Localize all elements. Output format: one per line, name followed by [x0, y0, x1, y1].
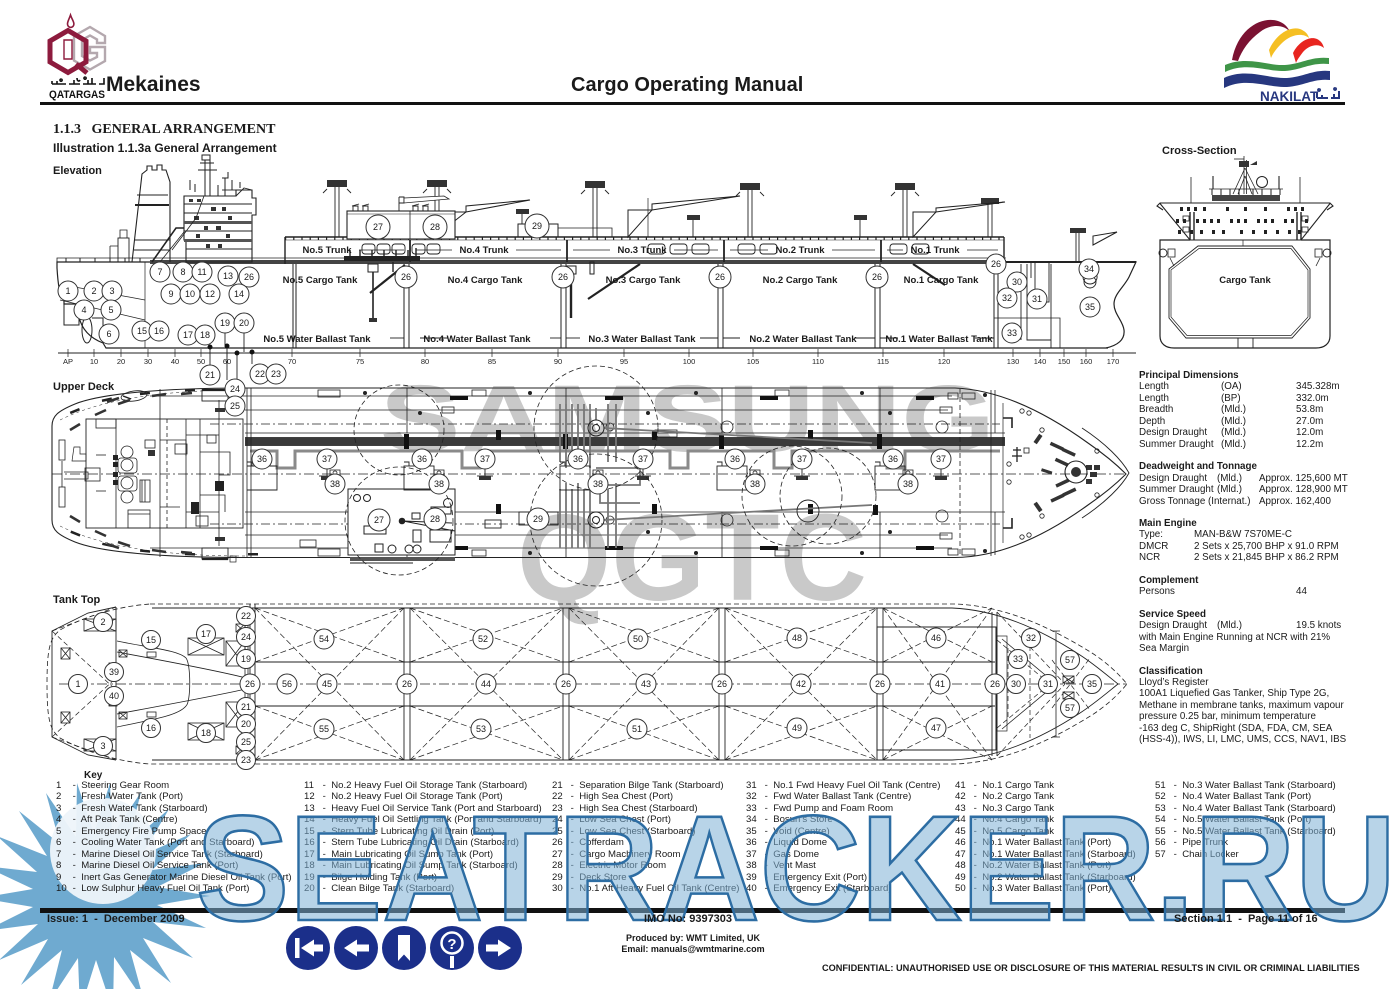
- svg-text:3: 3: [100, 741, 105, 751]
- svg-text:115: 115: [877, 357, 889, 366]
- svg-text:120: 120: [938, 357, 951, 366]
- svg-text:35: 35: [1085, 302, 1095, 312]
- svg-text:25: 25: [241, 737, 251, 747]
- svg-text:19: 19: [220, 318, 230, 328]
- svg-text:21: 21: [205, 370, 215, 380]
- svg-text:31: 31: [1043, 679, 1053, 689]
- svg-text:1: 1: [75, 679, 80, 689]
- svg-text:24: 24: [241, 632, 251, 642]
- svg-text:No.2 Trunk: No.2 Trunk: [775, 245, 825, 256]
- svg-text:No.1 Water Ballast Tank: No.1 Water Ballast Tank: [885, 334, 993, 345]
- svg-text:6: 6: [106, 329, 111, 339]
- svg-text:36: 36: [257, 454, 267, 464]
- svg-text:18: 18: [200, 330, 210, 340]
- svg-text:42: 42: [796, 679, 806, 689]
- svg-text:30: 30: [144, 357, 152, 366]
- svg-text:No.2 Water Ballast Tank: No.2 Water Ballast Tank: [749, 334, 857, 345]
- svg-text:44: 44: [481, 679, 491, 689]
- svg-text:85: 85: [488, 357, 496, 366]
- svg-text:19: 19: [241, 654, 251, 664]
- svg-text:37: 37: [322, 454, 332, 464]
- svg-text:7: 7: [157, 267, 162, 277]
- svg-text:33: 33: [1013, 654, 1023, 664]
- svg-text:57: 57: [1065, 703, 1075, 713]
- svg-text:130: 130: [1007, 357, 1020, 366]
- svg-text:49: 49: [792, 723, 802, 733]
- svg-text:150: 150: [1058, 357, 1071, 366]
- svg-text:30: 30: [1012, 277, 1022, 287]
- svg-text:No.4 Cargo Tank: No.4 Cargo Tank: [448, 275, 523, 286]
- svg-text:50: 50: [633, 634, 643, 644]
- svg-text:105: 105: [747, 357, 760, 366]
- svg-text:4: 4: [81, 305, 86, 315]
- svg-text:15: 15: [146, 635, 156, 645]
- svg-text:11: 11: [197, 267, 206, 277]
- svg-text:No.1 Cargo Tank: No.1 Cargo Tank: [904, 275, 979, 286]
- svg-text:27: 27: [374, 515, 384, 525]
- svg-text:21: 21: [241, 702, 251, 712]
- svg-text:37: 37: [638, 454, 648, 464]
- svg-text:70: 70: [288, 357, 296, 366]
- svg-text:53: 53: [476, 724, 486, 734]
- svg-text:90: 90: [554, 357, 562, 366]
- svg-text:30: 30: [1011, 679, 1021, 689]
- svg-text:38: 38: [903, 479, 913, 489]
- svg-text:2: 2: [100, 617, 105, 627]
- svg-text:80: 80: [421, 357, 429, 366]
- svg-text:26: 26: [244, 272, 254, 282]
- svg-text:38: 38: [330, 479, 340, 489]
- svg-text:38: 38: [434, 479, 444, 489]
- svg-text:170: 170: [1107, 357, 1120, 366]
- svg-text:3: 3: [109, 286, 114, 296]
- svg-text:13: 13: [223, 271, 233, 281]
- svg-text:32: 32: [1026, 633, 1036, 643]
- svg-text:8: 8: [180, 267, 185, 277]
- svg-text:51: 51: [632, 724, 642, 734]
- svg-text:25: 25: [230, 401, 240, 411]
- svg-text:No.3 Water Ballast Tank: No.3 Water Ballast Tank: [588, 334, 696, 345]
- svg-text:Cargo Tank: Cargo Tank: [1219, 275, 1271, 286]
- svg-text:54: 54: [319, 634, 329, 644]
- svg-text:26: 26: [561, 679, 571, 689]
- svg-text:20: 20: [117, 357, 125, 366]
- svg-text:No.1 Trunk: No.1 Trunk: [910, 245, 960, 256]
- svg-text:26: 26: [715, 272, 725, 282]
- svg-text:AP: AP: [63, 357, 73, 366]
- svg-text:50: 50: [197, 357, 205, 366]
- svg-text:29: 29: [532, 221, 542, 231]
- svg-text:38: 38: [750, 479, 760, 489]
- svg-text:26: 26: [717, 679, 727, 689]
- svg-text:37: 37: [480, 454, 490, 464]
- svg-text:40: 40: [171, 357, 179, 366]
- svg-text:20: 20: [239, 318, 249, 328]
- svg-text:26: 26: [245, 679, 255, 689]
- svg-text:34: 34: [1084, 264, 1094, 274]
- svg-text:32: 32: [1002, 293, 1012, 303]
- svg-text:45: 45: [322, 679, 332, 689]
- svg-text:23: 23: [271, 369, 281, 379]
- svg-text:27: 27: [373, 222, 383, 232]
- svg-text:?: ?: [447, 936, 456, 953]
- svg-text:140: 140: [1034, 357, 1047, 366]
- svg-text:48: 48: [792, 633, 802, 643]
- svg-text:26: 26: [401, 272, 411, 282]
- svg-text:29: 29: [533, 514, 543, 524]
- svg-text:18: 18: [201, 728, 211, 738]
- svg-text:5: 5: [108, 305, 113, 315]
- svg-text:110: 110: [812, 357, 824, 366]
- svg-text:10: 10: [90, 357, 98, 366]
- svg-text:46: 46: [931, 633, 941, 643]
- svg-text:17: 17: [183, 330, 193, 340]
- svg-text:56: 56: [282, 679, 292, 689]
- svg-text:12: 12: [205, 289, 215, 299]
- svg-text:40: 40: [109, 691, 119, 701]
- svg-text:15: 15: [137, 326, 147, 336]
- svg-text:22: 22: [255, 369, 265, 379]
- svg-text:No.2 Cargo Tank: No.2 Cargo Tank: [763, 275, 838, 286]
- svg-text:37: 37: [936, 454, 946, 464]
- svg-text:9: 9: [168, 289, 173, 299]
- svg-text:36: 36: [888, 454, 898, 464]
- svg-text:36: 36: [730, 454, 740, 464]
- svg-text:36: 36: [417, 454, 427, 464]
- svg-text:26: 26: [875, 679, 885, 689]
- svg-text:75: 75: [356, 357, 364, 366]
- svg-text:26: 26: [991, 259, 1001, 269]
- svg-text:33: 33: [1007, 328, 1017, 338]
- svg-text:17: 17: [201, 629, 211, 639]
- svg-text:160: 160: [1080, 357, 1093, 366]
- svg-text:28: 28: [430, 222, 440, 232]
- svg-text:No.5 Cargo Tank: No.5 Cargo Tank: [283, 275, 358, 286]
- svg-text:52: 52: [478, 634, 488, 644]
- svg-text:2: 2: [91, 286, 96, 296]
- svg-text:95: 95: [620, 357, 628, 366]
- svg-text:16: 16: [146, 723, 156, 733]
- svg-text:24: 24: [230, 384, 240, 394]
- svg-text:No.5 Water Ballast Tank: No.5 Water Ballast Tank: [263, 334, 371, 345]
- svg-text:41: 41: [935, 679, 945, 689]
- svg-text:10: 10: [185, 289, 195, 299]
- svg-text:No.4 Trunk: No.4 Trunk: [459, 245, 509, 256]
- svg-text:26: 26: [990, 679, 1000, 689]
- svg-text:No.3 Cargo Tank: No.3 Cargo Tank: [606, 275, 681, 286]
- svg-text:43: 43: [641, 679, 651, 689]
- svg-text:No.3 Trunk: No.3 Trunk: [617, 245, 667, 256]
- svg-text:26: 26: [558, 272, 568, 282]
- svg-text:23: 23: [241, 755, 251, 765]
- svg-text:39: 39: [109, 667, 119, 677]
- svg-text:35: 35: [1087, 679, 1097, 689]
- svg-text:31: 31: [1032, 294, 1042, 304]
- svg-text:28: 28: [430, 514, 440, 524]
- svg-text:1: 1: [65, 286, 70, 296]
- svg-text:20: 20: [241, 719, 251, 729]
- svg-text:47: 47: [931, 723, 941, 733]
- svg-text:No.4 Water Ballast Tank: No.4 Water Ballast Tank: [423, 334, 531, 345]
- svg-text:57: 57: [1065, 655, 1075, 665]
- svg-text:38: 38: [593, 479, 603, 489]
- svg-text:16: 16: [154, 326, 164, 336]
- svg-text:26: 26: [402, 679, 412, 689]
- svg-text:14: 14: [234, 289, 244, 299]
- svg-text:22: 22: [241, 611, 251, 621]
- svg-text:100: 100: [683, 357, 696, 366]
- svg-text:26: 26: [872, 272, 882, 282]
- svg-text:37: 37: [797, 454, 807, 464]
- svg-text:No.5 Trunk: No.5 Trunk: [302, 245, 352, 256]
- svg-text:36: 36: [573, 454, 583, 464]
- svg-text:55: 55: [319, 724, 329, 734]
